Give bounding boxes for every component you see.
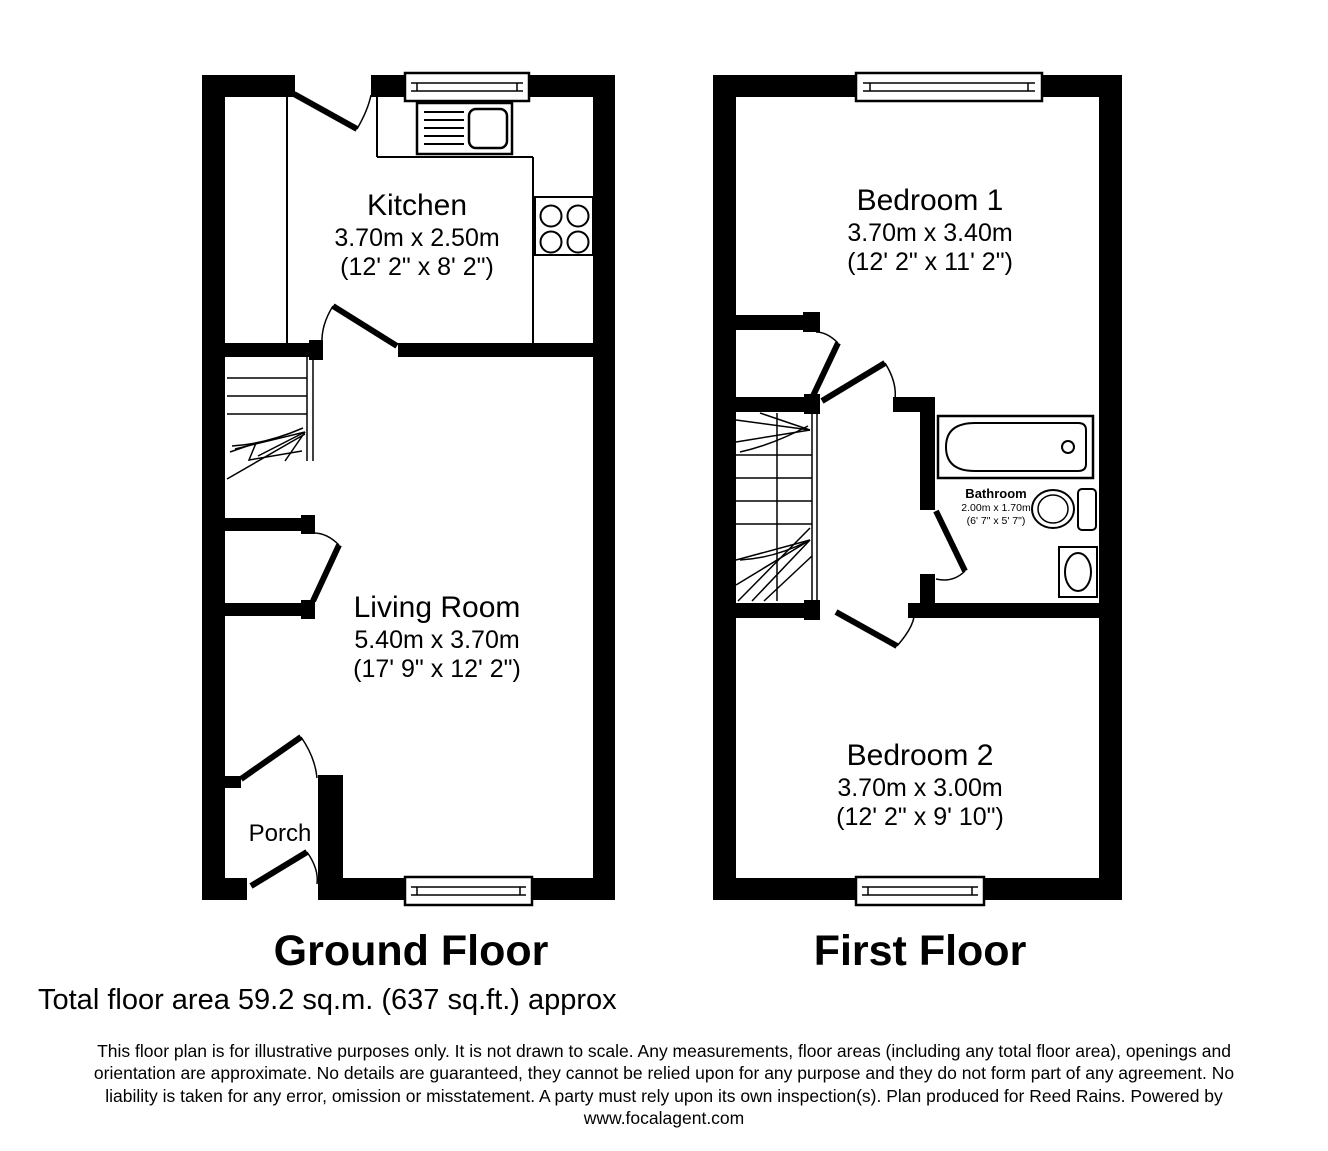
first-floor-title: First Floor: [814, 928, 1027, 974]
basin-icon: [1059, 547, 1097, 597]
bedroom2-name: Bedroom 2: [836, 738, 1004, 774]
disclaimer-line-3: liability is taken for any error, omissi…: [0, 1085, 1328, 1107]
bedroom1-label: Bedroom 1 3.70m x 3.40m (12' 2" x 11' 2"…: [847, 183, 1013, 277]
living-room-name: Living Room: [353, 590, 521, 626]
disclaimer-line-1: This floor plan is for illustrative purp…: [0, 1040, 1328, 1062]
bathtub-icon: [938, 416, 1093, 478]
kitchen-name: Kitchen: [334, 188, 499, 224]
total-floor-area: Total floor area 59.2 sq.m. (637 sq.ft.)…: [38, 984, 617, 1017]
bathroom-label: Bathroom 2.00m x 1.70m (6' 7" x 5' 7"): [961, 486, 1030, 528]
kitchen-size-imperial: (12' 2" x 8' 2"): [334, 253, 499, 282]
disclaimer: This floor plan is for illustrative purp…: [0, 1040, 1328, 1129]
first-floor-stairs: [736, 413, 817, 601]
bedroom1-name: Bedroom 1: [847, 183, 1013, 219]
bathroom-size-metric: 2.00m x 1.70m: [961, 502, 1030, 515]
bedroom1-window-icon: [856, 73, 1042, 101]
kitchen-label: Kitchen 3.70m x 2.50m (12' 2" x 8' 2"): [334, 188, 499, 282]
living-room-size-metric: 5.40m x 3.70m: [353, 626, 521, 655]
living-room-window-icon: [405, 877, 532, 905]
bedroom1-size-metric: 3.70m x 3.40m: [847, 219, 1013, 248]
bedroom2-size-imperial: (12' 2" x 9' 10"): [836, 803, 1004, 832]
disclaimer-website: www.focalagent.com: [0, 1107, 1328, 1129]
bathroom-size-imperial: (6' 7" x 5' 7"): [961, 515, 1030, 528]
toilet-icon: [1032, 489, 1096, 530]
bedroom2-window-icon: [856, 877, 984, 905]
disclaimer-line-2: orientation are approximate. No details …: [0, 1062, 1328, 1084]
bedroom1-size-imperial: (12' 2" x 11' 2"): [847, 248, 1013, 277]
floorplan-page: Kitchen 3.70m x 2.50m (12' 2" x 8' 2") L…: [0, 0, 1328, 1151]
living-room-size-imperial: (17' 9" x 12' 2"): [353, 655, 521, 684]
ground-floor-title: Ground Floor: [274, 928, 549, 974]
bathroom-name: Bathroom: [961, 486, 1030, 502]
porch-label: Porch: [249, 820, 312, 848]
bedroom2-size-metric: 3.70m x 3.00m: [836, 774, 1004, 803]
kitchen-size-metric: 3.70m x 2.50m: [334, 224, 499, 253]
bedroom2-label: Bedroom 2 3.70m x 3.00m (12' 2" x 9' 10"…: [836, 738, 1004, 832]
first-floor-doors: [812, 332, 965, 646]
kitchen-sink-icon: [417, 103, 512, 154]
hob-icon: [535, 197, 593, 255]
kitchen-window-icon: [405, 73, 529, 101]
floorplan-linework: [0, 0, 1328, 1151]
living-room-label: Living Room 5.40m x 3.70m (17' 9" x 12' …: [353, 590, 521, 684]
ground-floor-stairs: [227, 357, 313, 479]
